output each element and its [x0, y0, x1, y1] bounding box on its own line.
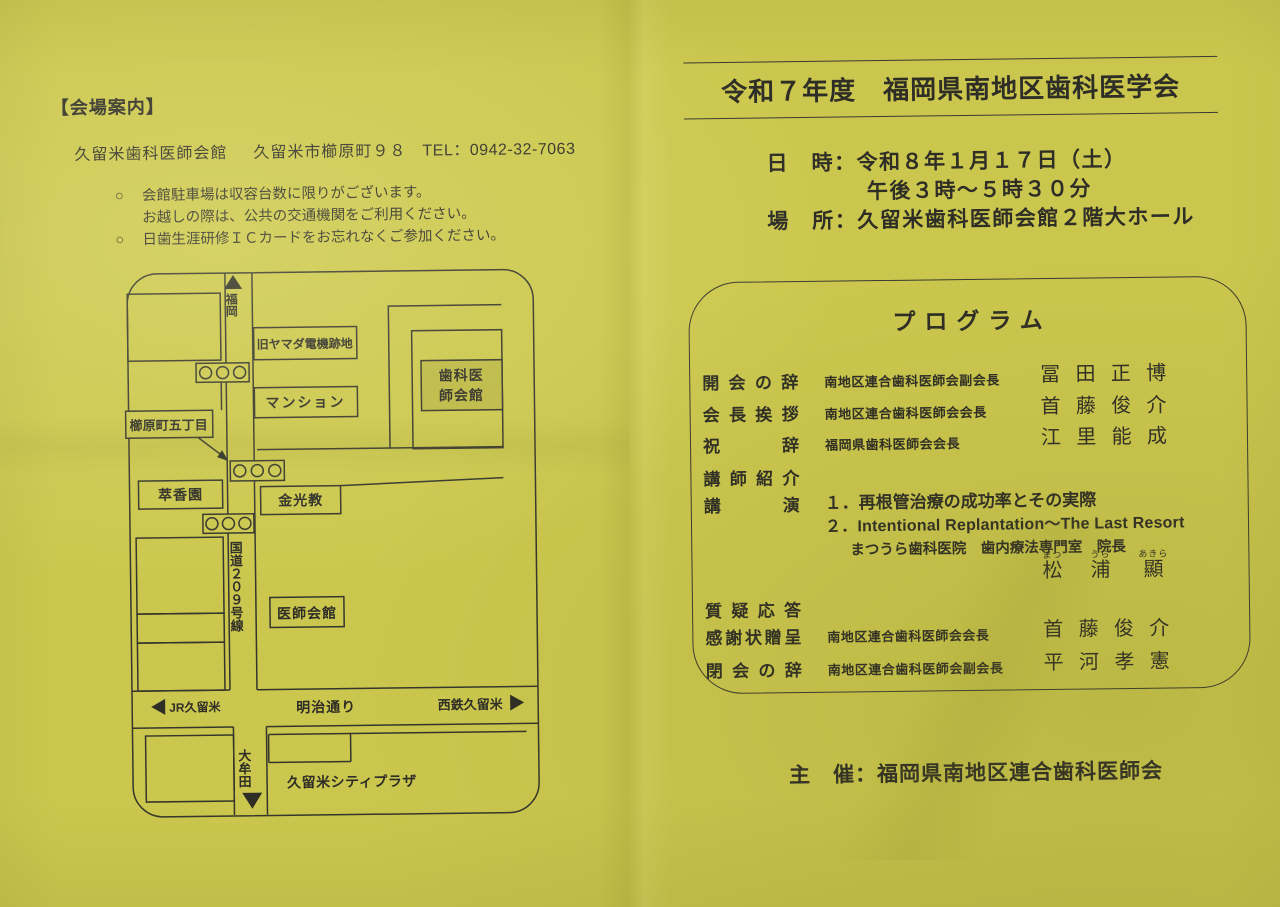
map-label-dental-hall-2: 師会館 — [439, 387, 484, 404]
map-label-omuta: 大牟田 — [236, 748, 251, 789]
furigana: あきら — [1138, 549, 1168, 559]
city-plaza-block — [269, 731, 527, 762]
bullet-circle-icon: ○ — [115, 185, 142, 207]
place-label: 場 所： — [767, 209, 857, 233]
program-row-label: 閉会の辞 — [706, 656, 802, 682]
program-row-name: 平河孝憲 — [1044, 645, 1170, 676]
venue-address-line: 久留米歯科医師会館久留米市櫛原町９８TEL：0942-32-7063 — [74, 135, 575, 165]
program-row-role: 南地区連合歯科医師会会長 — [825, 402, 987, 423]
venue-map: 福岡 大牟田 国道２０９号線 旧ヤマダ電機跡地 マンション 歯科医 師会館 櫛原… — [123, 259, 545, 819]
datetime-label: 日 時： — [766, 151, 856, 175]
venue-name: 久留米歯科医師会館 — [74, 145, 227, 164]
program-row-role: 福岡県歯科医師会会長 — [825, 433, 960, 454]
traffic-light-icon — [196, 363, 249, 383]
program-row-name: 江里能成 — [1041, 420, 1167, 451]
program-row-label: 講師紹介 — [703, 464, 799, 490]
program-row-name: 首藤俊介 — [1043, 612, 1169, 643]
note-ic-card: ○ 日歯生涯研修ＩＣカードをお忘れなくご参加ください。 — [115, 225, 505, 252]
event-title-block: 令和７年度 福岡県南地区歯科医学会 — [683, 56, 1218, 120]
map-label-fukuoka: 福岡 — [224, 291, 238, 317]
map-label-mansion: マンション — [265, 394, 345, 411]
furigana: まつ — [1042, 550, 1062, 560]
program-row-role: 南地区連合歯科医師会会長 — [827, 625, 989, 646]
note-text: 日歯生涯研修ＩＣカードをお忘れなくご参加ください。 — [142, 225, 505, 251]
program-row-label: 祝辞 — [703, 431, 799, 457]
event-title: 令和７年度 福岡県南地区歯科医学会 — [721, 66, 1180, 109]
traffic-light-icon — [203, 514, 254, 534]
venue-notes: ○ 会館駐車場は収容台数に限りがございます。 お越しの際は、公共の交通機関をご利… — [115, 181, 505, 252]
lecture-item-2: ２．Intentional Replantation～The Last Reso… — [825, 508, 1185, 536]
kanji: 顯 — [1143, 559, 1163, 581]
speaker-name-char: まつ松 — [1042, 550, 1062, 582]
map-label-route209: 国道２０９号線 — [228, 541, 244, 634]
map-label-kushihara: 櫛原町五丁目 — [130, 417, 208, 433]
map-label-jr-kurume: JR久留米 — [169, 699, 222, 715]
kanji: 浦 — [1090, 559, 1110, 581]
event-details: 日 時：令和８年１月１７日（土） 午後３時～５時３０分 場 所：久留米歯科医師会… — [766, 144, 1195, 236]
north-arrow-icon — [224, 275, 242, 289]
venue-address: 久留米市櫛原町９８ — [253, 143, 406, 162]
program-row-label: 講演 — [704, 491, 800, 517]
west-arrow-icon — [151, 699, 165, 715]
east-arrow-icon — [510, 694, 524, 710]
traffic-light-icon — [230, 460, 284, 481]
furigana: うら — [1090, 549, 1110, 559]
organizer-label: 主 催： — [789, 763, 877, 787]
program-title: プログラム — [689, 299, 1245, 340]
kanji: 松 — [1042, 560, 1062, 582]
program-row-role: 南地区連合歯科医師会副会長 — [828, 658, 1004, 679]
program-row-name: 首藤俊介 — [1040, 389, 1166, 420]
event-place: 場 所：久留米歯科医師会館２階大ホール — [767, 202, 1195, 236]
datetime-value: 令和８年１月１７日（土） — [856, 148, 1126, 174]
organizer-line: 主 催：福岡県南地区連合歯科医師会 — [789, 755, 1163, 790]
program-row-label: 質疑応答 — [705, 596, 801, 622]
map-label-suikoen: 萃香園 — [158, 486, 203, 503]
flyer-photo: 【会場案内】 久留米歯科医師会館久留米市櫛原町９８TEL：0942-32-706… — [0, 0, 1280, 907]
bullet-circle-icon: ○ — [115, 229, 142, 251]
map-label-meiji-dori: 明治通り — [296, 698, 356, 715]
lecture-title: Intentional Replantation～The Last Resort — [857, 514, 1184, 535]
map-label-nishitetsu-kurume: 西鉄久留米 — [438, 697, 504, 713]
program-row-label: 感謝状贈呈 — [705, 623, 801, 649]
organizer-value: 福岡県南地区連合歯科医師会 — [877, 760, 1163, 786]
south-arrow-icon — [242, 793, 262, 809]
program-row-label: 開会の辞 — [702, 368, 798, 394]
lecture-number: １． — [825, 493, 859, 512]
program-row-label: 会長挨拶 — [702, 400, 798, 426]
lecture-number: ２． — [825, 518, 858, 535]
map-label-ishikaikan: 医師会館 — [277, 605, 337, 622]
venue-tel: TEL：0942-32-7063 — [422, 141, 575, 160]
venue-guide-heading: 【会場案内】 — [51, 93, 165, 120]
map-label-city-plaza: 久留米シティプラザ — [286, 773, 417, 791]
map-label-yamada: 旧ヤマダ電機跡地 — [257, 336, 353, 352]
program-row-name: 冨田正博 — [1040, 357, 1166, 388]
map-label-konkokyo: 金光教 — [277, 492, 323, 509]
paper-sheet: 【会場案内】 久留米歯科医師会館久留米市櫛原町９８TEL：0942-32-706… — [0, 0, 1280, 895]
program-row-role: 南地区連合歯科医師会副会長 — [824, 370, 1000, 391]
speaker-name-char: うら浦 — [1090, 549, 1110, 581]
program-box: プログラム 開会の辞 南地区連合歯科医師会副会長 冨田正博 会長挨拶 南地区連合… — [688, 276, 1251, 695]
place-value: 久留米歯科医師会館２階大ホール — [857, 205, 1195, 232]
map-label-dental-hall-1: 歯科医 — [439, 367, 484, 384]
speaker-name: まつ松 うら浦 あきら顯 — [1042, 549, 1168, 583]
speaker-name-char: あきら顯 — [1138, 549, 1168, 581]
